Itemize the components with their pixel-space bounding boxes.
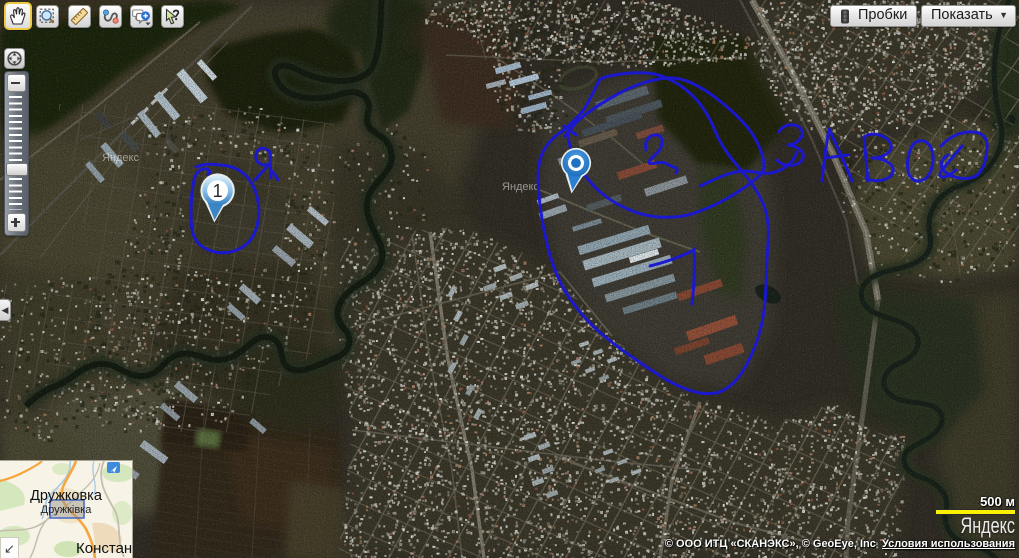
svg-text:Яндекс: Яндекс [502, 181, 539, 193]
svg-text:1: 1 [213, 181, 223, 201]
svg-text:Яндекс: Яндекс [102, 152, 139, 164]
